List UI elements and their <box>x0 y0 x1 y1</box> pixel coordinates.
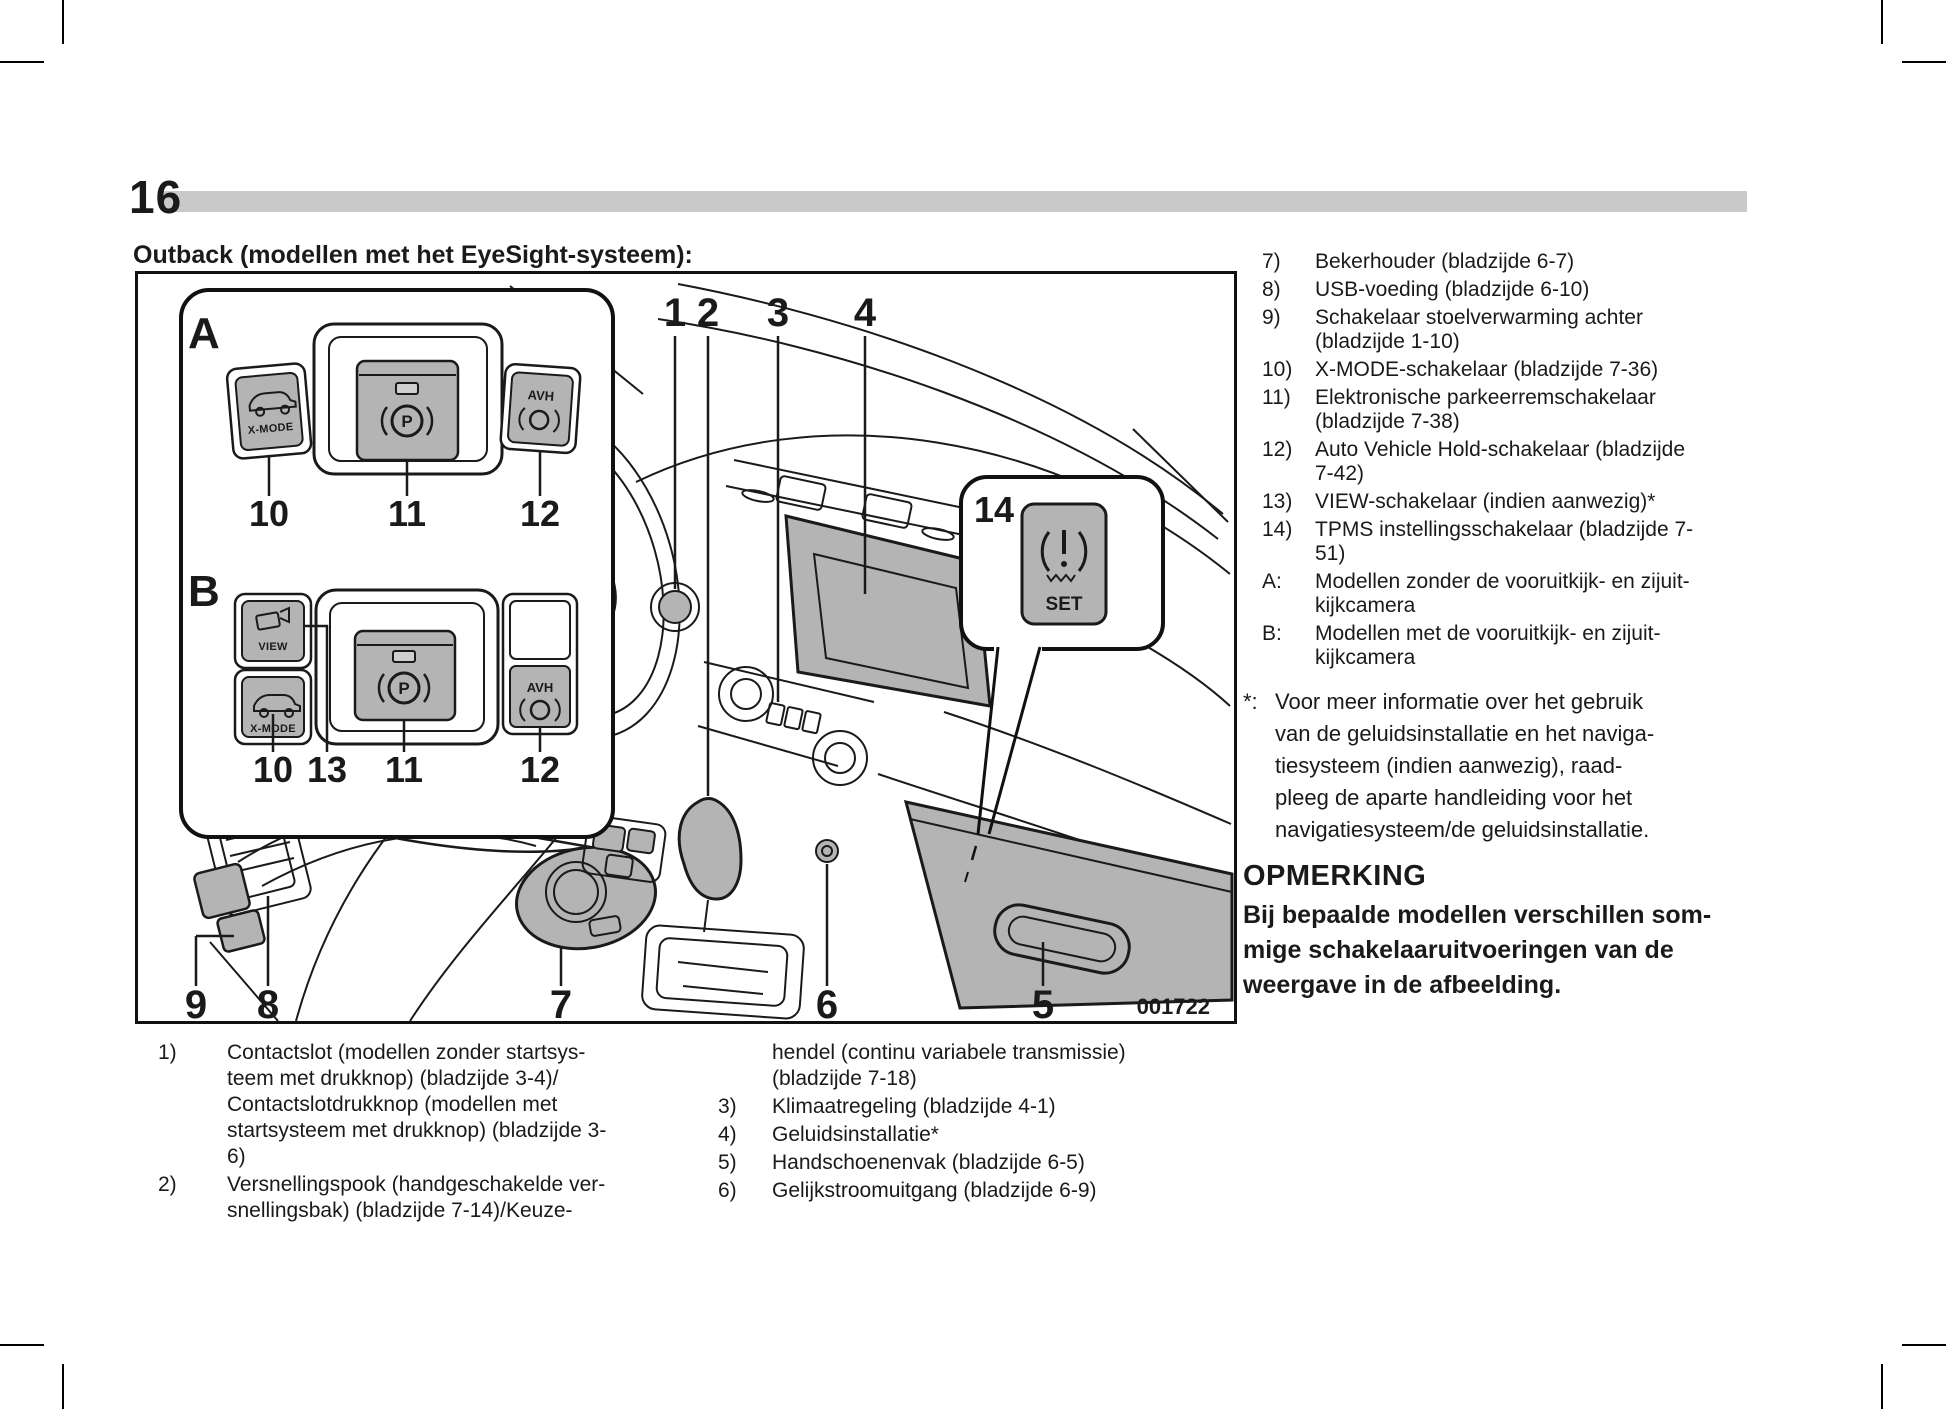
manual-page: 16 Outback (modellen met het EyeSight-sy… <box>0 0 1946 1409</box>
avh-button-b: AVH <box>503 594 577 734</box>
legend-item-number: 8) <box>1262 278 1315 302</box>
legend-item-number: 7) <box>1262 250 1315 274</box>
tpms-set-button: SET <box>1022 504 1106 624</box>
legend-item-number: 1) <box>158 1040 227 1170</box>
panel-a-label: A <box>188 309 220 358</box>
legend-item-text: Contactslot (modellen zonder startsys- t… <box>227 1040 703 1170</box>
callout-12a: 12 <box>520 493 560 534</box>
legend-item: 1) Contactslot (modellen zonder startsys… <box>158 1040 703 1170</box>
figure-code: 001722 <box>1137 994 1210 1019</box>
legend-item-number: 13) <box>1262 490 1315 514</box>
callout-10b: 10 <box>253 749 293 790</box>
legend-item: 2) Versnellingspook (handgeschakelde ver… <box>158 1172 703 1224</box>
footnote-text: Voor meer informatie over het gebruik va… <box>1275 686 1823 846</box>
callout-9: 9 <box>185 983 207 1021</box>
legend-item-text: Modellen zonder de vooruitkijk- en zijui… <box>1315 570 1822 618</box>
legend-item: 10) X-MODE-schakelaar (bladzijde 7-36) <box>1262 358 1822 382</box>
legend-item-text: Auto Vehicle Hold-schakelaar (bladzijde … <box>1315 438 1822 486</box>
legend-item-number: 4) <box>718 1122 772 1148</box>
crop-mark <box>1902 61 1946 63</box>
legend-bottom-right: hendel (continu variabele transmissie) (… <box>718 1040 1223 1206</box>
avh-button-a: AVH <box>500 364 581 454</box>
avh-label-a: AVH <box>527 387 554 404</box>
view-label-b: VIEW <box>258 641 288 653</box>
legend-right-column: 7) Bekerhouder (bladzijde 6-7) 8) USB-vo… <box>1262 250 1822 674</box>
legend-item-text: Geluidsinstallatie* <box>772 1122 1223 1148</box>
legend-item: A: Modellen zonder de vooruitkijk- en zi… <box>1262 570 1822 618</box>
callout-12b: 12 <box>520 749 560 790</box>
callout-7: 7 <box>550 983 572 1021</box>
legend-bottom-left: 1) Contactslot (modellen zonder startsys… <box>158 1040 703 1226</box>
legend-item-number: 3) <box>718 1094 772 1120</box>
legend-item-number: 11) <box>1262 386 1315 434</box>
callout-13b: 13 <box>307 749 347 790</box>
legend-item: 6) Gelijkstroomuitgang (bladzijde 6-9) <box>718 1178 1223 1204</box>
tpms-set-label: SET <box>1046 594 1083 615</box>
legend-item: 8) USB-voeding (bladzijde 6-10) <box>1262 278 1822 302</box>
legend-item-text: TPMS instellingsschakelaar (bladzijde 7-… <box>1315 518 1822 566</box>
legend-item-number: 2) <box>158 1172 227 1224</box>
legend-item-text: Bekerhouder (bladzijde 6-7) <box>1315 250 1822 274</box>
callout-4: 4 <box>854 291 877 335</box>
legend-item-text: X-MODE-schakelaar (bladzijde 7-36) <box>1315 358 1822 382</box>
view-button-b: VIEW <box>235 594 311 668</box>
crop-mark <box>62 1364 64 1409</box>
park-letter-a: P <box>401 412 412 431</box>
legend-item: 12) Auto Vehicle Hold-schakelaar (bladzi… <box>1262 438 1822 486</box>
legend-item-text: Klimaatregeling (bladzijde 4-1) <box>772 1094 1223 1120</box>
legend-item-text: Handschoenenvak (bladzijde 6-5) <box>772 1150 1223 1176</box>
legend-item: 7) Bekerhouder (bladzijde 6-7) <box>1262 250 1822 274</box>
legend-item-number: 10) <box>1262 358 1315 382</box>
legend-item-number: 12) <box>1262 438 1315 486</box>
legend-item: 14) TPMS instellingsschakelaar (bladzijd… <box>1262 518 1822 566</box>
tpms-callout: 14 SET <box>961 477 1163 882</box>
callout-2: 2 <box>697 291 719 335</box>
callout-10a: 10 <box>249 493 289 534</box>
switch-panel-inset: A X-MODE <box>181 290 613 837</box>
legend-item-text: VIEW-schakelaar (indien aanwezig)* <box>1315 490 1822 514</box>
dashboard-figure: A X-MODE <box>135 271 1237 1024</box>
callout-14: 14 <box>974 489 1014 530</box>
callout-11a: 11 <box>388 493 426 534</box>
legend-item-number: 9) <box>1262 306 1315 354</box>
callout-11b: 11 <box>385 749 423 790</box>
callout-8: 8 <box>257 983 279 1021</box>
legend-item: hendel (continu variabele transmissie) (… <box>718 1040 1223 1092</box>
legend-item: B: Modellen met de vooruitkijk- en zijui… <box>1262 622 1822 670</box>
legend-item-number: A: <box>1262 570 1315 618</box>
legend-item: 4) Geluidsinstallatie* <box>718 1122 1223 1148</box>
legend-item: 11) Elektronische parkeerremschakelaar (… <box>1262 386 1822 434</box>
legend-item-text: Schakelaar stoelverwarming achter (bladz… <box>1315 306 1822 354</box>
legend-item-text: Versnellingspook (handgeschakelde ver- s… <box>227 1172 703 1224</box>
footnote-marker: *: <box>1243 686 1275 846</box>
crop-mark <box>1881 1364 1883 1409</box>
legend-item-number <box>718 1040 772 1092</box>
legend-item-text: Elektronische parkeerremschakelaar (blad… <box>1315 386 1822 434</box>
legend-item-number: B: <box>1262 622 1315 670</box>
footnote: *: Voor meer informatie over het gebruik… <box>1243 686 1823 846</box>
legend-item: 3) Klimaatregeling (bladzijde 4-1) <box>718 1094 1223 1120</box>
callout-5: 5 <box>1032 983 1054 1021</box>
legend-item-text: Modellen met de vooruitkijk- en zijuit- … <box>1315 622 1822 670</box>
legend-item-number: 5) <box>718 1150 772 1176</box>
dashboard-diagram: A X-MODE <box>138 274 1234 1021</box>
crop-mark <box>0 61 44 63</box>
legend-item: 5) Handschoenenvak (bladzijde 6-5) <box>718 1150 1223 1176</box>
avh-label-b: AVH <box>527 680 553 695</box>
xmode-button-a: X-MODE <box>226 363 312 459</box>
note-body: Bij bepaalde modellen verschillen som- m… <box>1243 898 1818 1003</box>
callout-3: 3 <box>767 291 789 335</box>
legend-item-number: 14) <box>1262 518 1315 566</box>
park-letter-b: P <box>398 679 409 698</box>
legend-item: 9) Schakelaar stoelverwarming achter (bl… <box>1262 306 1822 354</box>
note-heading: OPMERKING <box>1243 860 1426 893</box>
callout-6: 6 <box>816 983 838 1021</box>
legend-item: 13) VIEW-schakelaar (indien aanwezig)* <box>1262 490 1822 514</box>
crop-mark <box>0 1344 44 1346</box>
legend-item-text: hendel (continu variabele transmissie) (… <box>772 1040 1223 1092</box>
callout-1: 1 <box>664 291 686 335</box>
crop-mark <box>1881 0 1883 44</box>
crop-mark <box>1902 1344 1946 1346</box>
page-number: 16 <box>129 170 182 224</box>
crop-mark <box>62 0 64 44</box>
legend-item-text: USB-voeding (bladzijde 6-10) <box>1315 278 1822 302</box>
section-title: Outback (modellen met het EyeSight-syste… <box>133 241 693 270</box>
legend-item-text: Gelijkstroomuitgang (bladzijde 6-9) <box>772 1178 1223 1204</box>
panel-b-label: B <box>188 567 220 616</box>
header-bar <box>163 191 1747 212</box>
legend-item-number: 6) <box>718 1178 772 1204</box>
